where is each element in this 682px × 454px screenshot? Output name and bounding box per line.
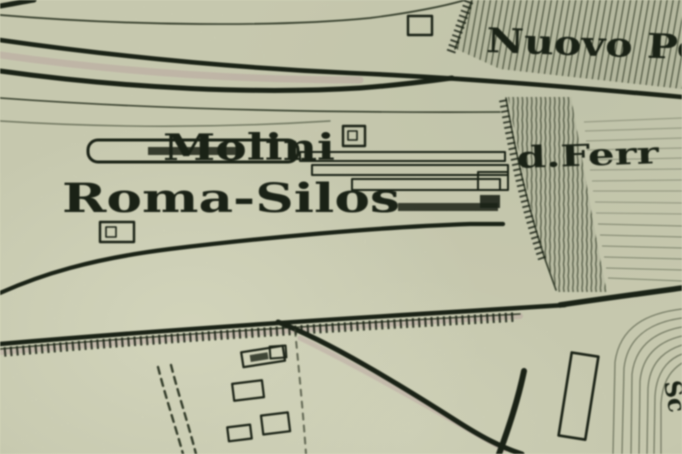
paper-grain-overlay	[0, 0, 682, 454]
map-canvas[interactable]: Nuovo Po Molini Roma-Silos d.Ferr Sc	[0, 0, 682, 454]
map-viewport[interactable]: Nuovo Po Molini Roma-Silos d.Ferr Sc	[0, 0, 682, 454]
